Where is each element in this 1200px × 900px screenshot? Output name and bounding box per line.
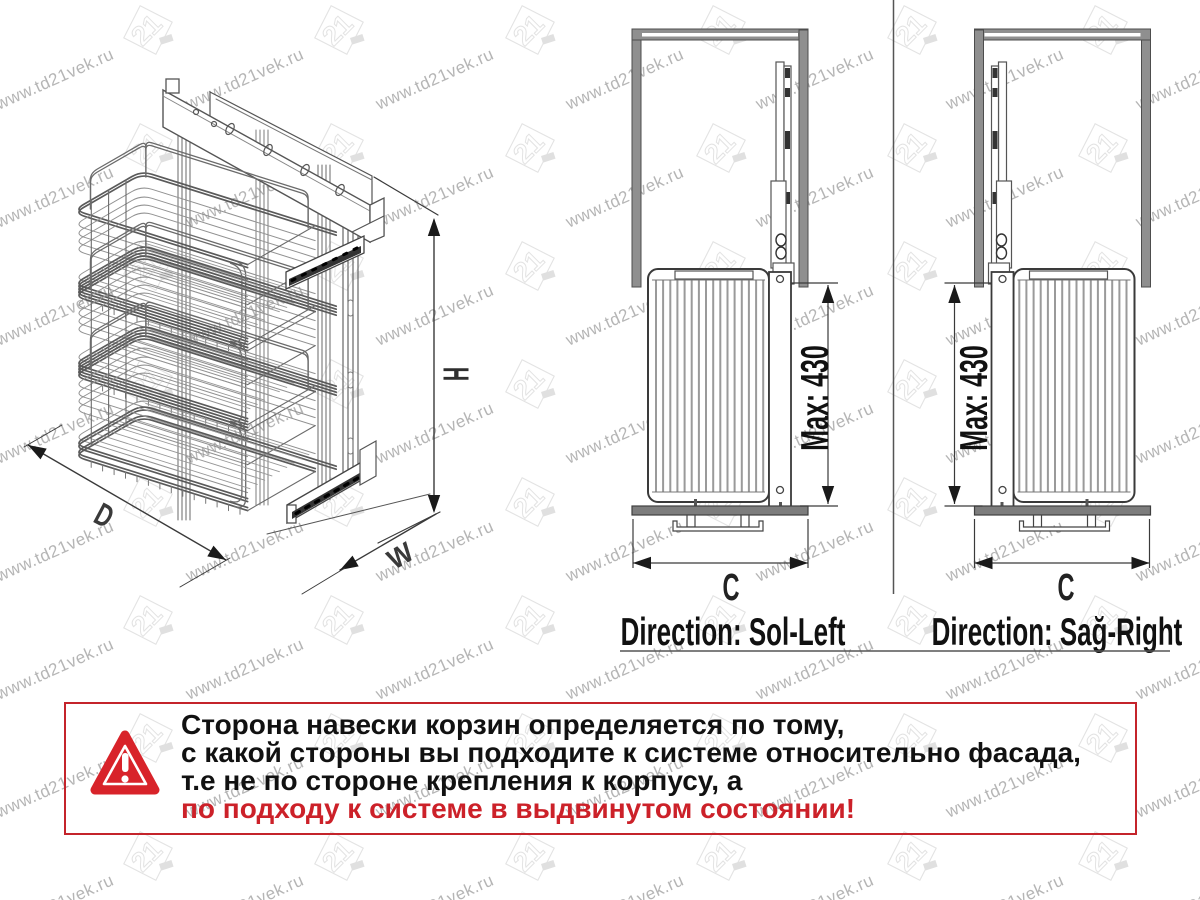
svg-text:www.td21vek.ru: www.td21vek.ru	[752, 870, 877, 900]
svg-text:21: 21	[1080, 127, 1122, 169]
svg-text:21: 21	[125, 9, 167, 51]
svg-text:21: 21	[1080, 835, 1122, 877]
svg-text:www.td21vek.ru: www.td21vek.ru	[562, 44, 687, 113]
svg-text:21: 21	[316, 9, 358, 51]
svg-text:www.td21vek.ru: www.td21vek.ru	[942, 870, 1067, 900]
svg-text:21: 21	[507, 9, 549, 51]
svg-text:www.td21vek.ru: www.td21vek.ru	[182, 634, 307, 703]
svg-text:www.td21vek.ru: www.td21vek.ru	[1132, 752, 1200, 821]
svg-text:по подходу к системе в выдвину: по подходу к системе в выдвинутом состоя…	[181, 793, 855, 824]
svg-text:21: 21	[507, 245, 549, 287]
svg-text:www.td21vek.ru: www.td21vek.ru	[372, 634, 497, 703]
svg-text:www.td21vek.ru: www.td21vek.ru	[562, 162, 687, 231]
svg-text:21: 21	[125, 835, 167, 877]
svg-text:H: H	[435, 367, 475, 381]
svg-text:Max: 430: Max: 430	[951, 345, 995, 450]
svg-text:www.td21vek.ru: www.td21vek.ru	[1132, 870, 1200, 900]
svg-text:Сторона навески корзин определ: Сторона навески корзин определяется по т…	[181, 709, 844, 740]
svg-text:www.td21vek.ru: www.td21vek.ru	[1132, 398, 1200, 467]
svg-text:www.td21vek.ru: www.td21vek.ru	[182, 44, 307, 113]
svg-text:Direction: Sol-Left: Direction: Sol-Left	[621, 611, 846, 655]
svg-text:21: 21	[698, 127, 740, 169]
svg-text:с какой стороны вы подходите к: с какой стороны вы подходите к системе о…	[181, 737, 1081, 768]
svg-text:21: 21	[507, 835, 549, 877]
svg-text:www.td21vek.ru: www.td21vek.ru	[752, 44, 877, 113]
svg-text:21: 21	[507, 127, 549, 169]
svg-text:21: 21	[889, 835, 931, 877]
svg-text:www.td21vek.ru: www.td21vek.ru	[1132, 280, 1200, 349]
svg-text:21: 21	[1080, 717, 1122, 759]
svg-text:21: 21	[507, 363, 549, 405]
svg-text:21: 21	[507, 481, 549, 523]
svg-text:C: C	[722, 565, 739, 608]
svg-text:Direction: Sağ-Right: Direction: Sağ-Right	[932, 611, 1183, 655]
svg-text:21: 21	[889, 9, 931, 51]
svg-text:21: 21	[507, 599, 549, 641]
svg-text:21: 21	[316, 599, 358, 641]
svg-text:www.td21vek.ru: www.td21vek.ru	[0, 870, 117, 900]
svg-text:www.td21vek.ru: www.td21vek.ru	[372, 870, 497, 900]
svg-text:D: D	[89, 496, 120, 535]
svg-text:21: 21	[698, 835, 740, 877]
svg-text:www.td21vek.ru: www.td21vek.ru	[372, 44, 497, 113]
svg-text:www.td21vek.ru: www.td21vek.ru	[0, 634, 117, 703]
svg-text:Max: 430: Max: 430	[792, 345, 836, 450]
svg-text:21: 21	[889, 245, 931, 287]
svg-text:21: 21	[889, 127, 931, 169]
svg-text:21: 21	[889, 599, 931, 641]
svg-text:21: 21	[889, 481, 931, 523]
svg-text:т.е не по стороне крепления к: т.е не по стороне крепления к корпусу, а	[181, 765, 743, 796]
svg-text:www.td21vek.ru: www.td21vek.ru	[182, 870, 307, 900]
svg-text:www.td21vek.ru: www.td21vek.ru	[0, 44, 117, 113]
svg-text:21: 21	[316, 835, 358, 877]
svg-text:21: 21	[889, 363, 931, 405]
svg-text:www.td21vek.ru: www.td21vek.ru	[562, 870, 687, 900]
svg-text:www.td21vek.ru: www.td21vek.ru	[752, 516, 877, 585]
svg-text:21: 21	[125, 599, 167, 641]
svg-text:www.td21vek.ru: www.td21vek.ru	[1132, 516, 1200, 585]
svg-text:21: 21	[125, 481, 167, 523]
svg-text:C: C	[1057, 565, 1074, 608]
svg-text:www.td21vek.ru: www.td21vek.ru	[562, 516, 687, 585]
